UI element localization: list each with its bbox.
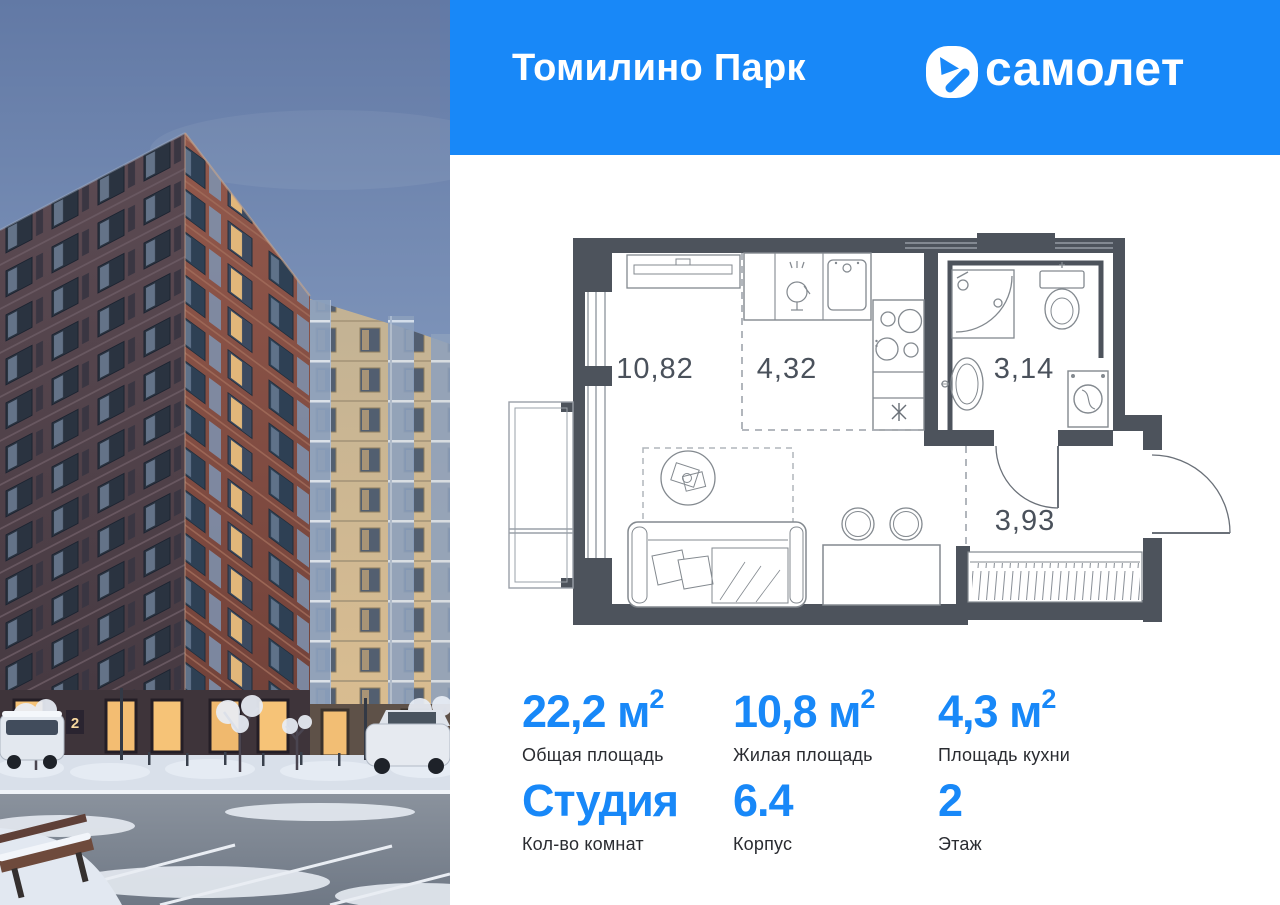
bathroom-door xyxy=(996,446,1058,508)
room-area-label-bathroom: 3,14 xyxy=(994,353,1054,385)
toilet-icon xyxy=(1040,262,1084,329)
room-area-label-kitchen: 4,32 xyxy=(757,353,817,385)
washbasin-icon xyxy=(941,358,983,410)
project-title: Томилино Парк xyxy=(512,47,806,90)
shower-icon xyxy=(952,270,1014,338)
floor-plan: 10,82 4,32 3,14 3,93 xyxy=(450,155,1280,655)
tv-console xyxy=(627,255,740,288)
brand-logo: самолет xyxy=(926,46,1185,98)
sofa-bed xyxy=(628,522,806,607)
stat-rooms: Студия Кол-во комнат xyxy=(522,778,678,855)
stat-floor: 2 Этаж xyxy=(938,778,982,855)
stat-total-area-label: Общая площадь xyxy=(522,745,664,766)
stat-rooms-value: Студия xyxy=(522,775,678,826)
entrance-door xyxy=(1152,455,1230,533)
stat-floor-value: 2 xyxy=(938,775,962,826)
stat-rooms-label: Кол-во комнат xyxy=(522,834,678,855)
stat-living-area: 10,8 м2 Жилая площадь xyxy=(733,676,875,766)
bathroom xyxy=(941,262,1108,508)
building-beige-wing xyxy=(300,296,450,762)
stat-kitchen-area: 4,3 м2 Площадь кухни xyxy=(938,676,1070,766)
dining-table xyxy=(823,508,940,605)
stat-building: 6.4 Корпус xyxy=(733,778,793,855)
building-photo: 2 xyxy=(0,0,450,905)
samolet-logo-icon xyxy=(926,46,978,98)
brand-logo-text: самолет xyxy=(985,44,1185,96)
kitchen-block xyxy=(742,253,924,430)
entrance-number: 2 xyxy=(71,715,79,732)
balcony xyxy=(509,402,573,588)
van xyxy=(0,711,64,769)
washing-machine-icon xyxy=(1068,371,1108,427)
header: Томилино Парк самолет xyxy=(450,0,1280,155)
stat-living-area-value: 10,8 xyxy=(733,686,817,737)
stat-total-area-value: 22,2 xyxy=(522,686,606,737)
wardrobe xyxy=(968,552,1142,602)
stat-building-value: 6.4 xyxy=(733,775,793,826)
stat-kitchen-area-value: 4,3 xyxy=(938,686,998,737)
building-photo-graphic: 2 xyxy=(0,0,450,905)
stat-living-area-label: Жилая площадь xyxy=(733,745,875,766)
stat-total-area: 22,2 м2 Общая площадь xyxy=(522,676,664,766)
room-area-label-living: 10,82 xyxy=(616,353,694,385)
stat-building-label: Корпус xyxy=(733,834,793,855)
floor-plan-graphic: 10,82 4,32 3,14 3,93 xyxy=(450,155,1280,655)
stat-kitchen-area-label: Площадь кухни xyxy=(938,745,1070,766)
entrance-number-sign: 2 xyxy=(66,710,84,734)
listing-flyer: { "colors": { "brand_blue": "#1888F8", "… xyxy=(0,0,1280,905)
stat-floor-label: Этаж xyxy=(938,834,982,855)
coffee-table xyxy=(661,451,715,505)
room-area-label-hallway: 3,93 xyxy=(995,505,1055,537)
